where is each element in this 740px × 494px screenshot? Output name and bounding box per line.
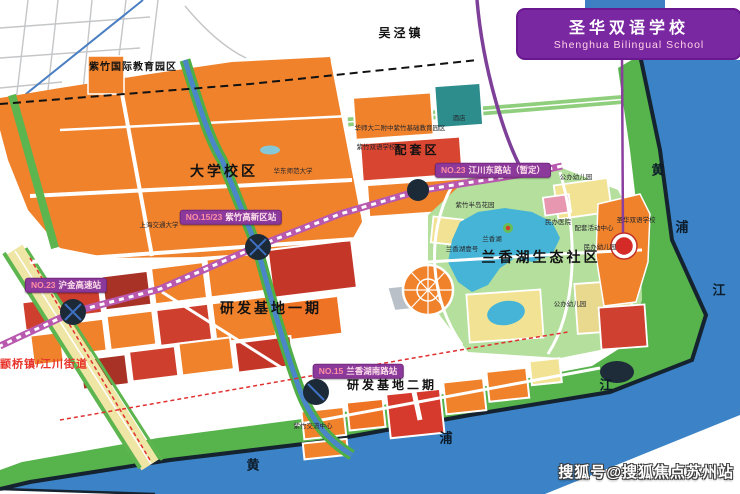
- school-location-marker: [611, 233, 637, 259]
- dark-parcel: [600, 361, 634, 383]
- banner-title: 圣华双语学校: [518, 14, 740, 38]
- edu-park-parcel: [88, 56, 124, 94]
- planning-map-screenshot: 吴泾镇紫竹国际教育园区大学校区配套区兰香湖生态社区研发基地一期研发基地二期颛桥镇…: [0, 0, 740, 494]
- circular-plaza: [403, 265, 453, 315]
- banner-subtitle: Shenghua Bilingual School: [518, 39, 740, 51]
- school-banner: 圣华双语学校 Shenghua Bilingual School: [516, 8, 740, 60]
- watermark: 搜狐号@搜狐焦点苏州站: [558, 461, 734, 482]
- planning-map-canvas: [0, 0, 740, 494]
- banner-leader-line: [622, 57, 623, 234]
